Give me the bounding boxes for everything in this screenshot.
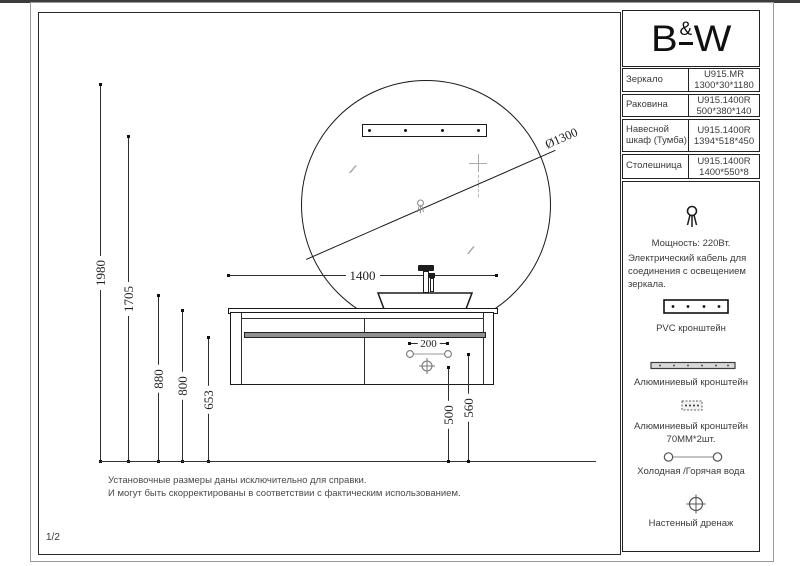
spec-sheet-page: Ø1300 ∕∕ ∕∕ 1400 xyxy=(0,0,800,566)
bracket-hole-dot xyxy=(441,129,444,132)
power-note-line: соединения с освещением xyxy=(628,265,746,278)
dim-endpoint-dot xyxy=(447,460,450,463)
spec-size: 1400*550*8 xyxy=(699,167,749,178)
pvc-bracket-label: PVC кронштейн xyxy=(623,323,759,334)
spec-row-mirror: Зеркало U915.MR 1300*30*1180 xyxy=(622,68,760,92)
power-note-line: Электрический кабель для xyxy=(628,252,746,265)
power-note-line: зеркала. xyxy=(628,278,746,291)
spec-value: U915.MR 1300*30*1180 xyxy=(688,69,759,91)
dim-endpoint-dot xyxy=(447,366,450,369)
cabinet-top-rail-line xyxy=(241,318,484,319)
spec-row-sink: Раковина U915.1400R 500*380*140 xyxy=(622,94,760,117)
cabinet-side-panel-line xyxy=(483,313,484,384)
dim-line-1980: 1980 xyxy=(100,84,101,462)
logo-letter-b: B xyxy=(651,18,678,60)
dim-label-560: 560 xyxy=(461,394,477,422)
dim-endpoint-dot xyxy=(467,460,470,463)
wall-drain-icon xyxy=(686,494,706,514)
dim-endpoint-dot xyxy=(127,135,130,138)
dim-label-1705: 1705 xyxy=(121,282,137,316)
pvc-bracket-icon xyxy=(663,299,729,314)
spec-code: U915.MR xyxy=(704,69,744,80)
dim-line-1705: 1705 xyxy=(128,136,129,462)
spec-value: U915.1400R 500*380*140 xyxy=(688,95,759,116)
mirror-bracket-plate xyxy=(362,124,487,137)
spec-value: U915.1400R 1394*518*450 xyxy=(688,120,759,151)
spec-size: 1300*30*1180 xyxy=(694,80,754,91)
dim-line-200: 200 xyxy=(409,343,448,344)
power-cable-icon xyxy=(682,204,702,232)
diameter-dimension-label: Ø1300 xyxy=(543,125,580,152)
logo-ampersand: & xyxy=(679,19,694,45)
bracket-hole-dot xyxy=(477,129,480,132)
aluminum-bracket-label: Алюминиевый кронштейн xyxy=(623,377,759,388)
spec-code: U915.1400R xyxy=(697,95,750,106)
dim-label-1400: 1400 xyxy=(346,268,380,284)
technical-drawing: Ø1300 ∕∕ ∕∕ 1400 xyxy=(38,12,619,553)
spec-value: U915.1400R 1400*550*8 xyxy=(688,155,759,178)
dim-line-800: 800 xyxy=(182,310,183,462)
dim-line-653: 653 xyxy=(208,337,209,462)
glass-hatch-icon: ∕∕ xyxy=(352,164,354,176)
spec-size: 1394*518*450 xyxy=(694,136,754,147)
spec-size: 500*380*140 xyxy=(697,106,752,117)
floor-line xyxy=(99,461,596,462)
dim-label-500: 500 xyxy=(441,401,457,429)
dim-endpoint-dot xyxy=(181,309,184,312)
water-connections-label: Холодная /Горячая вода xyxy=(623,466,759,477)
footnote-line: Установочные размеры даны исключительно … xyxy=(108,475,461,488)
dim-label-1980: 1980 xyxy=(93,256,109,290)
faucet-handle xyxy=(430,278,434,292)
cabinet-side-panel-line xyxy=(241,313,242,384)
wall-drain-label: Настенный дренаж xyxy=(623,518,759,529)
dim-line-560: 560 xyxy=(468,354,469,462)
spec-row-cabinet: Навесной шкаф (Тумба) U915.1400R 1394*51… xyxy=(622,119,760,152)
aluminum-bracket-small-icon xyxy=(681,400,703,411)
dim-endpoint-dot xyxy=(157,294,160,297)
spec-label: Столешница xyxy=(623,155,688,178)
spec-label: Зеркало xyxy=(623,69,688,91)
dim-endpoint-dot xyxy=(227,274,230,277)
spec-code: U915.1400R xyxy=(697,156,750,167)
spec-row-countertop: Столешница U915.1400R 1400*550*8 xyxy=(622,154,760,179)
bracket-hole-dot xyxy=(368,129,371,132)
cabinet-divider-line xyxy=(364,318,365,384)
dim-label-880: 880 xyxy=(151,365,167,393)
glass-hatch-icon: ∕∕ xyxy=(470,245,472,257)
cross-v-line xyxy=(478,154,479,172)
dim-endpoint-dot xyxy=(446,342,449,345)
footnote-line: И могут быть скорректированы в соответст… xyxy=(108,488,461,501)
bracket-hole-dot xyxy=(404,129,407,132)
cross-dash-line xyxy=(478,175,479,197)
notes-panel: Мощность: 220Вт. Электрический кабель дл… xyxy=(622,181,760,552)
spec-code: U915.1400R xyxy=(697,125,750,136)
spec-label: Раковина xyxy=(623,95,688,116)
vanity-cabinet xyxy=(230,312,494,385)
dim-line-880: 880 xyxy=(158,295,159,462)
dim-endpoint-dot xyxy=(408,342,411,345)
power-cable-icon xyxy=(414,198,427,217)
sheet-number: 1/2 xyxy=(46,532,60,543)
brand-logo: B & W xyxy=(622,10,760,67)
logo-letter-w: W xyxy=(694,18,732,60)
dim-label-200: 200 xyxy=(417,338,440,350)
power-note: Электрический кабель для соединения с ос… xyxy=(628,252,746,291)
dim-endpoint-dot xyxy=(207,336,210,339)
dim-line-500: 500 xyxy=(448,367,449,462)
aluminum-bracket-icon xyxy=(650,361,736,370)
power-title: Мощность: 220Вт. xyxy=(623,238,759,249)
wall-drain-icon xyxy=(419,358,435,374)
dim-endpoint-dot xyxy=(467,353,470,356)
dim-endpoint-dot xyxy=(99,83,102,86)
water-connections-icon xyxy=(663,451,723,463)
footnote: Установочные размеры даны исключительно … xyxy=(108,475,461,500)
dim-label-800: 800 xyxy=(175,372,191,400)
aluminum-bracket-bar xyxy=(244,332,486,338)
aluminum-bracket-small-label: Алюминиевый кронштейн xyxy=(623,421,759,432)
spec-label: Навесной шкаф (Тумба) xyxy=(623,120,688,151)
dim-endpoint-dot xyxy=(495,274,498,277)
dim-label-653: 653 xyxy=(201,386,217,414)
aluminum-bracket-small-qty: 70MM*2шт. xyxy=(623,434,759,445)
dim-line-1400: 1400 xyxy=(228,275,497,276)
